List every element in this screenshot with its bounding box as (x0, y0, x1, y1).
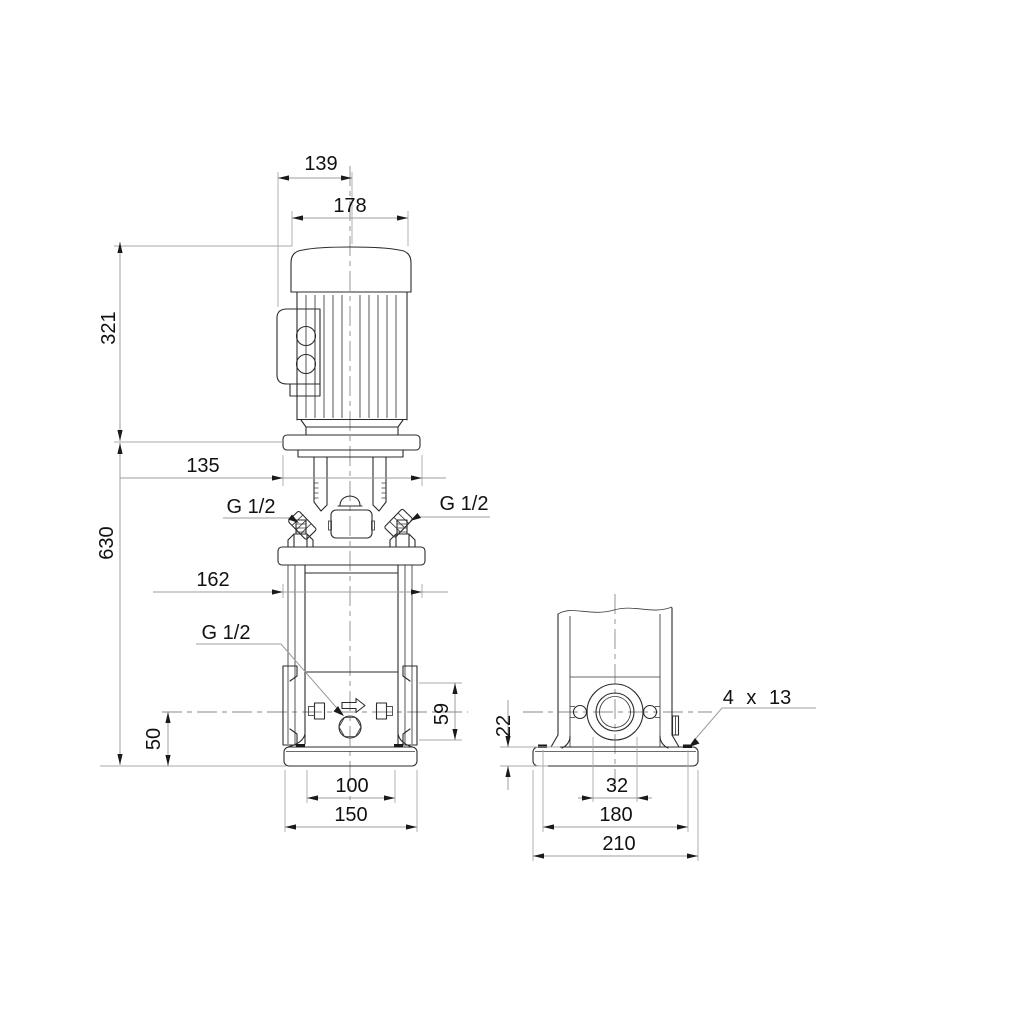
dim-50: 50 (143, 712, 171, 766)
gauge-port-stub-left (315, 703, 325, 719)
plug-threads (292, 515, 311, 534)
dim-135-label: 135 (186, 455, 219, 477)
hex-nut-left (288, 534, 313, 547)
bolt-holes-leader (691, 708, 816, 744)
stool-leg-left-ticks (314, 483, 319, 498)
motor-stool (283, 435, 420, 547)
motor-bottom-band (301, 420, 403, 435)
dim-162-extensions (283, 584, 422, 598)
g12-drain-label: G 1/2 (202, 622, 251, 644)
dim-22: 22 (493, 700, 560, 790)
gauge-port-stub-right (377, 703, 387, 719)
dim-135-extensions (283, 455, 422, 486)
terminal-box-outline (277, 309, 320, 384)
foot-bolt-mark (296, 744, 305, 748)
stool-leg-right (373, 457, 386, 511)
dim-139-label: 139 (304, 153, 337, 175)
dim-162-label: 162 (196, 569, 229, 591)
pump-head-flange (278, 547, 425, 565)
stool-leg-left (314, 457, 327, 511)
label-g12-drain: G 1/2 (196, 622, 344, 716)
g12-right-leader (412, 517, 490, 520)
gauge-port-stem-right (387, 707, 393, 716)
terminal-box-step (290, 384, 320, 396)
bolt-hole-mark (538, 745, 547, 749)
label-g12-left: G 1/2 (223, 496, 299, 523)
dim-210-label: 210 (602, 833, 635, 855)
dim-50-label: 50 (143, 728, 165, 750)
stool-leg-right-ticks (382, 483, 387, 498)
gauge-port-stem-left (309, 707, 315, 716)
flow-arrow-icon (342, 699, 365, 713)
dim-630: 630 (96, 443, 286, 766)
dim-22-extensions (500, 747, 560, 766)
dim-139: 139 (278, 153, 352, 307)
dim-321-extensions (114, 246, 292, 442)
dim-321: 321 (98, 242, 292, 442)
dim-630-label: 630 (96, 526, 118, 559)
g12-right-arrow (410, 513, 421, 521)
dim-22-arrows (505, 736, 510, 777)
bolt-holes-label: 4 x 13 (723, 687, 791, 709)
side-view (277, 247, 425, 766)
plug-threads (390, 513, 409, 532)
label-g12-right: G 1/2 (410, 493, 490, 521)
dim-32-label: 32 (606, 775, 628, 797)
motor-flange (283, 435, 420, 450)
dim-135: 135 (120, 455, 446, 486)
coupling-guard (331, 510, 372, 538)
terminal-box (277, 309, 320, 396)
dim-150-label: 150 (334, 804, 367, 826)
dimensions: 139 178 321 630 135 (96, 153, 816, 861)
bedplate-end-view (533, 747, 698, 766)
foot-bolt-mark (394, 744, 403, 748)
g12-left-label: G 1/2 (227, 496, 276, 518)
dim-59: 59 (419, 683, 462, 740)
dim-162: 162 (153, 569, 448, 598)
dim-139-extensions (278, 172, 352, 307)
drawing-canvas: 139 178 321 630 135 (0, 0, 1024, 1024)
motor-body-outline (291, 292, 411, 420)
dim-180-label: 180 (599, 804, 632, 826)
end-view (533, 607, 698, 766)
g12-right-label: G 1/2 (440, 493, 489, 515)
dim-321-label: 321 (98, 311, 120, 344)
dim-100: 100 (307, 770, 395, 803)
vent-plug-right (384, 509, 413, 538)
g12-left-leader (223, 518, 297, 521)
dim-178-label: 178 (333, 195, 366, 217)
bedplate-side-view (284, 744, 417, 766)
dim-59-label: 59 (431, 703, 453, 725)
label-bolt-holes: 4 x 13 (689, 687, 816, 747)
motor (291, 247, 411, 435)
stool-plate (298, 450, 403, 457)
dim-22-label: 22 (493, 715, 515, 737)
bedplate (284, 747, 417, 766)
hex-nut-right (390, 534, 415, 547)
pump-dimension-drawing: 139 178 321 630 135 (0, 0, 1024, 1024)
dim-100-label: 100 (335, 775, 368, 797)
motor-top-cap (291, 247, 411, 292)
bolt-holes-arrow (689, 738, 700, 747)
